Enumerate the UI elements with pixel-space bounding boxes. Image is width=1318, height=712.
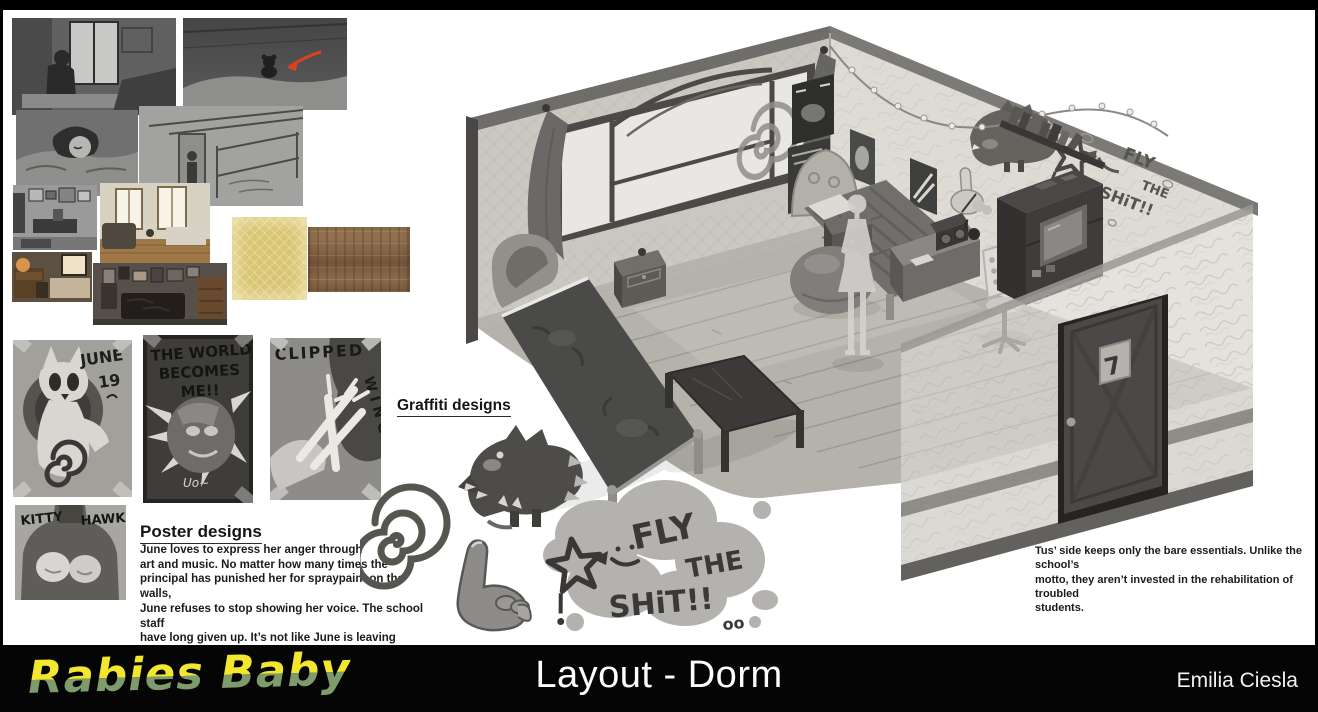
page-title: Layout - Dorm — [0, 654, 1318, 697]
middle-finger-doodle — [458, 541, 531, 630]
fly-the-shit-graffiti: FLY THE SHiT!! oo — [543, 480, 778, 634]
door-knob — [1067, 418, 1076, 427]
room-note: Tus’ side keeps only the bare essentials… — [1035, 544, 1307, 615]
kettle — [968, 228, 980, 240]
storyboard-sketch-bed-with-plush — [183, 18, 347, 110]
kitty-hawk-mini-poster — [792, 74, 834, 145]
frame-top — [0, 0, 1318, 10]
graffiti-designs-heading: Graffiti designs — [397, 397, 511, 417]
frame-left — [0, 0, 3, 712]
poster-world-line3: ME!! — [180, 381, 220, 401]
poster-world-signature: Uo~ — [183, 476, 209, 490]
wallpaper-texture-swatch — [232, 217, 307, 300]
artist-credit: Emilia Ciesla — [1177, 669, 1298, 693]
poster-june19: JUNE 19 — [13, 340, 132, 497]
graffiti-dots: oo — [722, 613, 746, 634]
spiral-doodle — [360, 487, 447, 586]
storyboard-sketch-figure-by-window — [12, 18, 176, 115]
graffiti-doodles: FLY THE SHiT!! oo — [360, 415, 780, 643]
poster-june19-line2: 19 — [97, 370, 122, 392]
poster-kitty-hawk: KITTY HAWK — [15, 505, 126, 600]
left-wall-outer-edge — [466, 116, 478, 344]
wood-texture-swatch — [308, 227, 410, 292]
photo-cluttered-room-bw — [13, 185, 97, 250]
dorm-door: 7 — [1058, 294, 1168, 524]
poster-world-becomes-me: THE WORLD BECOMES ME!! Uo~ — [143, 335, 253, 503]
photo-bright-room — [100, 183, 210, 265]
poster-kitty-right: HAWK — [80, 511, 126, 529]
photo-dorm-desk-bed — [12, 252, 92, 302]
concept-art-board: FLY THE SHiT!! — [0, 0, 1318, 712]
poster-designs-heading: Poster designs — [140, 522, 262, 544]
photo-dark-bedroom — [93, 263, 227, 325]
title-bar: Rabies Baby Rabies Baby Layout - Dorm Em… — [0, 645, 1318, 712]
